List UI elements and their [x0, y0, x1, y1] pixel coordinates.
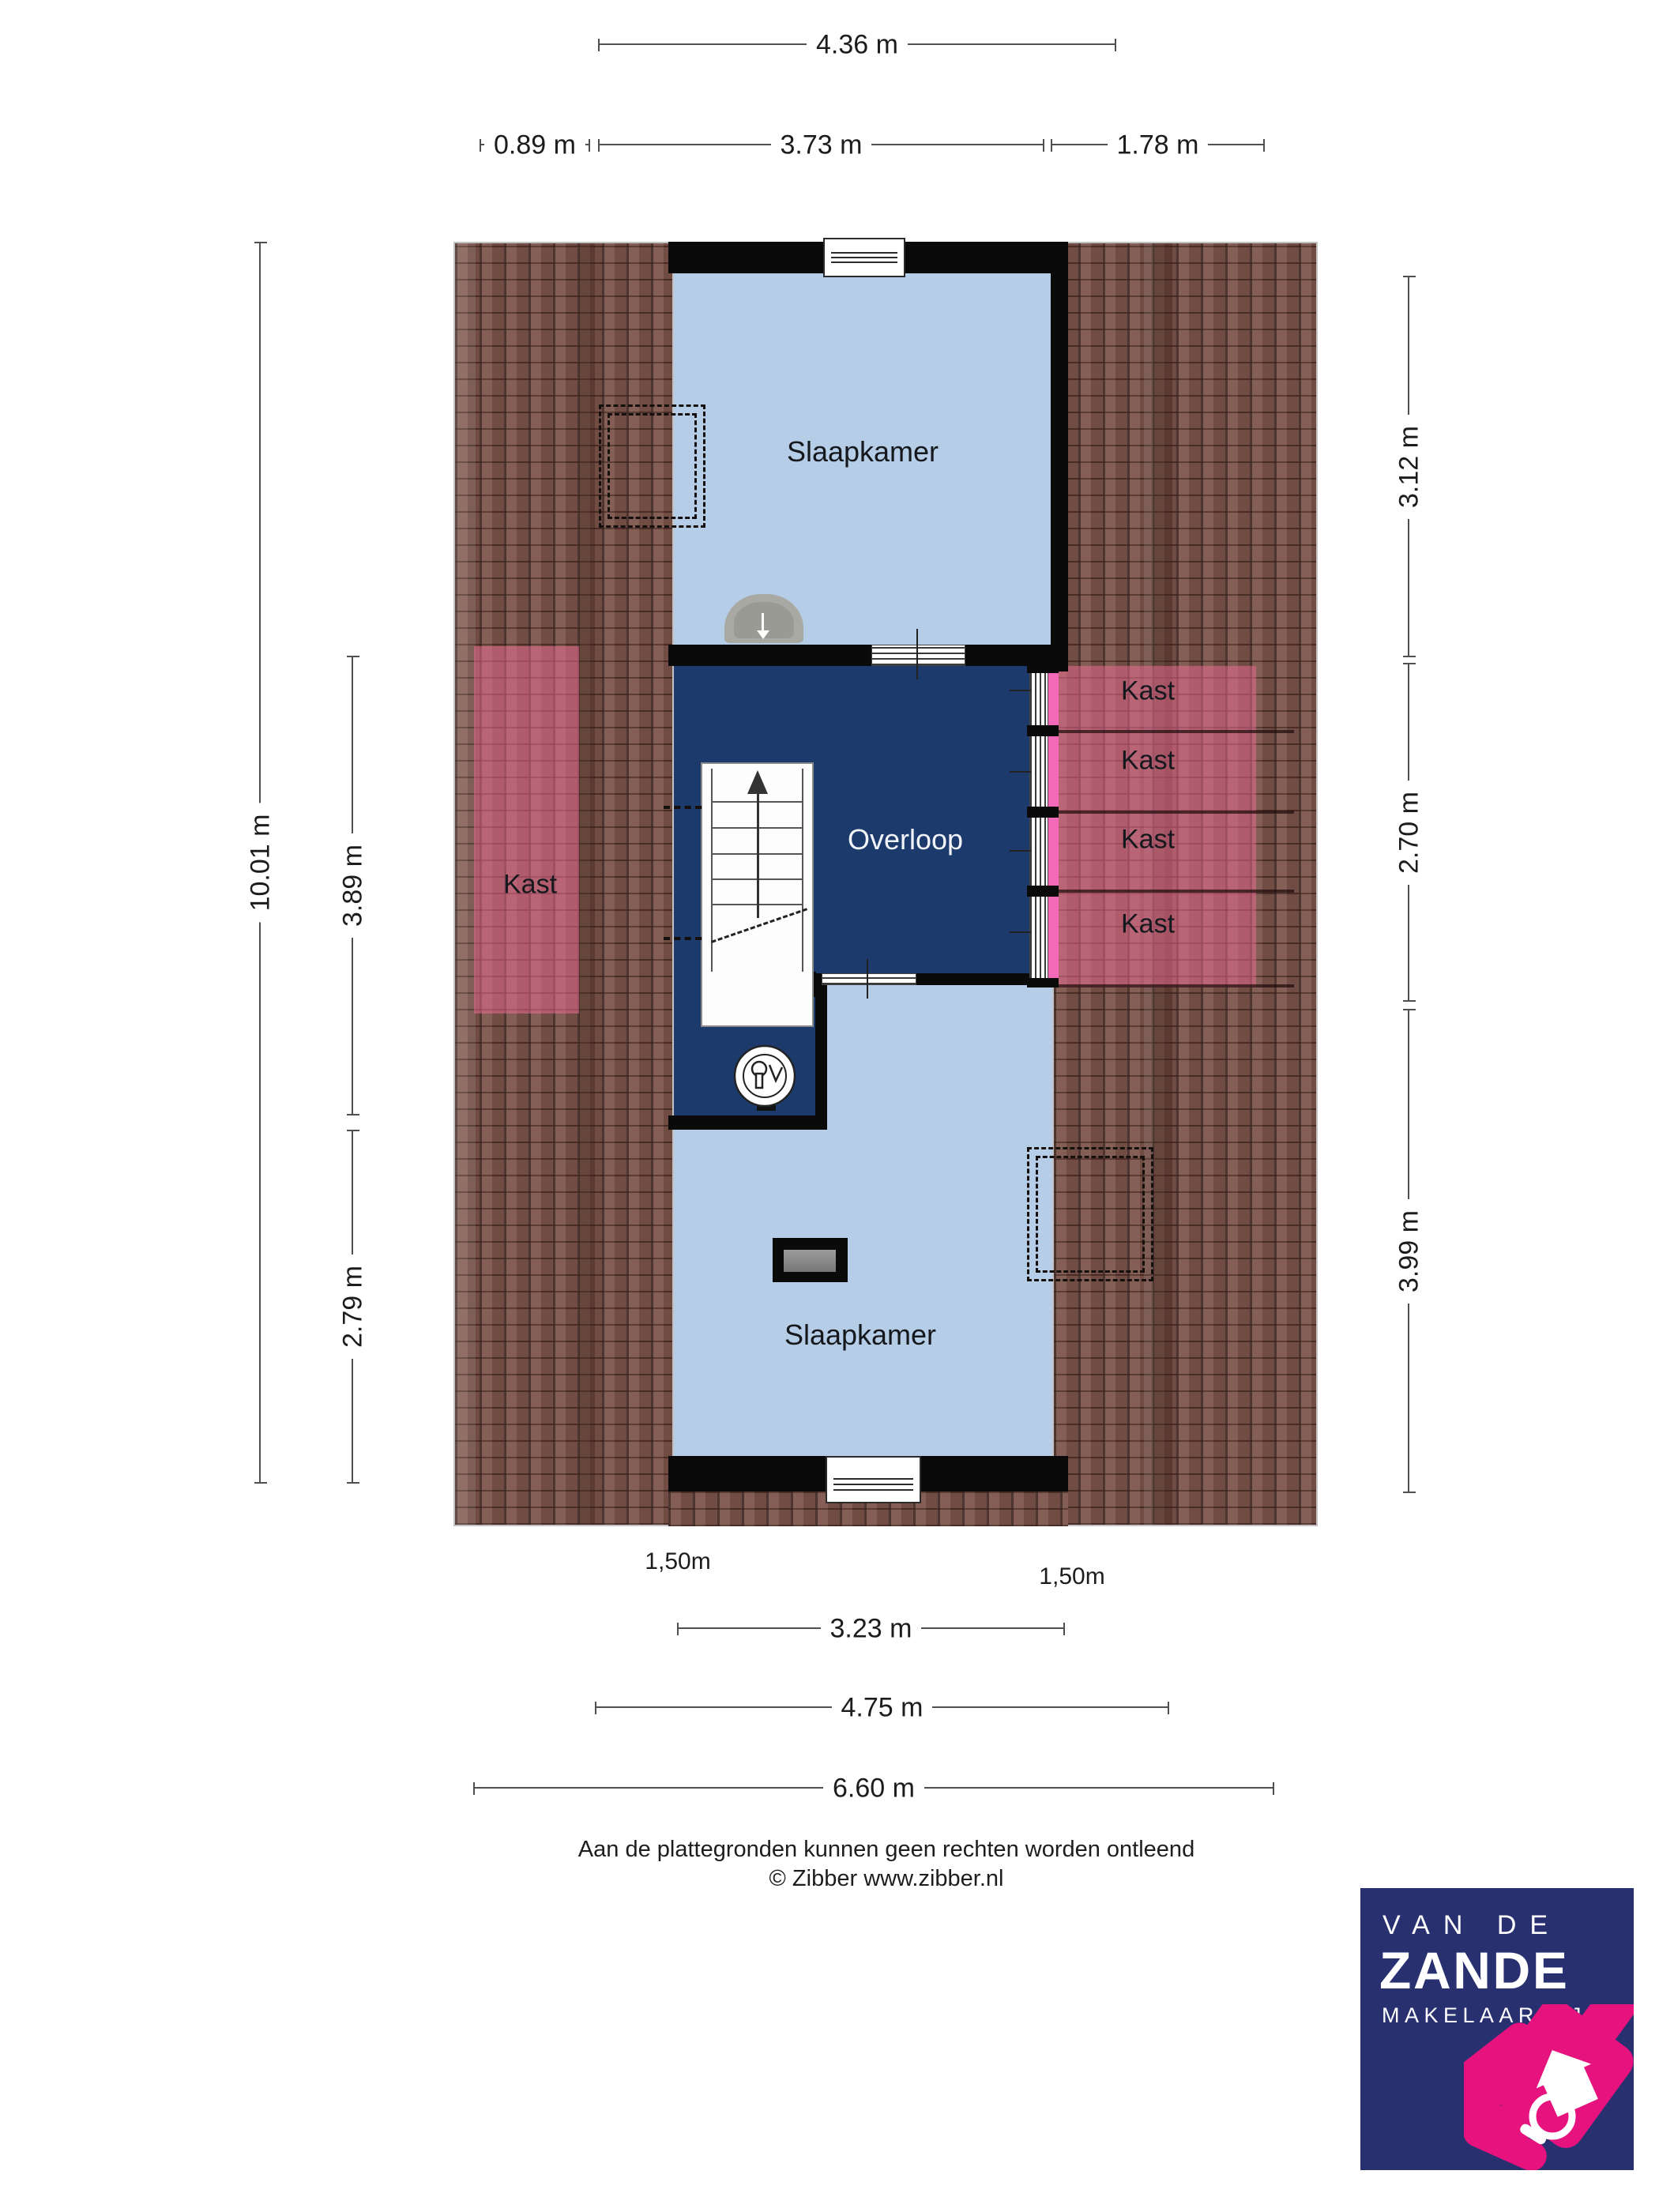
wall-divider-top: [668, 645, 871, 666]
headroom-label-left: 1,50m: [645, 1548, 710, 1575]
room-slaapkamer-bottom: [674, 1130, 1052, 1456]
sliding-door-icon: [871, 645, 965, 666]
closet-separator: [1052, 890, 1294, 893]
chimney-icon: [773, 1238, 848, 1282]
stairs-up-arrow-icon: [747, 770, 768, 794]
closet-doors: [1029, 671, 1048, 980]
dimension-top-total: 4.36 m: [598, 43, 1116, 45]
closet-jamb: [1027, 666, 1059, 673]
dimension-label: 0.89 m: [484, 129, 585, 163]
dimension-label: 1.78 m: [1108, 129, 1209, 163]
dimension-top-right: 1.78 m: [1051, 144, 1265, 145]
agency-logo: VAN DE ZANDE MAKELAARDIJ: [1360, 1888, 1634, 2170]
dimension-left-lower: 2.79 m: [352, 1130, 353, 1484]
logo-line-zande: ZANDE: [1379, 1940, 1570, 2000]
closet-pink-strip: [1048, 666, 1059, 987]
credit-text: © Zibber www.zibber.nl: [769, 1866, 1004, 1892]
room-label-kast-4: Kast: [1121, 909, 1175, 940]
roof-seam: [455, 243, 476, 1525]
window-glazing: [833, 1489, 913, 1491]
stair-cut-line: [711, 908, 807, 943]
ventilation-icon: [733, 1044, 796, 1112]
dimension-top-left: 0.89 m: [480, 144, 590, 145]
wall-top: [668, 242, 823, 273]
closet-jamb: [1027, 725, 1059, 736]
closet-jamb: [1027, 807, 1059, 818]
room-label-kast-2: Kast: [1121, 746, 1175, 777]
wall-divider-bottom: [816, 973, 822, 985]
dimension-bottom-1: 3.23 m: [677, 1627, 1065, 1629]
wall-stair-bay-right: [815, 985, 827, 1130]
wall-stair-bay-bottom: [668, 1115, 827, 1130]
dimension-label: 2.79 m: [337, 1255, 371, 1359]
roof-seam: [579, 243, 595, 1525]
dormer-outline-inner: [608, 413, 697, 519]
sink-drain-arrow: [757, 630, 769, 639]
room-label-kast-3: Kast: [1121, 825, 1175, 856]
door-tick: [916, 629, 918, 679]
closet-tick: [1010, 850, 1031, 852]
closet-jamb: [1027, 886, 1059, 897]
dimension-label: 2.70 m: [1393, 781, 1427, 885]
dimension-label: 3.89 m: [337, 833, 371, 938]
wall-right-top-bedroom: [1051, 242, 1068, 671]
door-tick: [867, 959, 868, 999]
room-label-kast-1: Kast: [1121, 676, 1175, 707]
closet-separator: [1052, 811, 1294, 814]
wall-divider-top: [965, 645, 1051, 666]
headroom-label-right: 1,50m: [1039, 1563, 1104, 1590]
dimension-label: 3.12 m: [1393, 415, 1427, 519]
window-glazing: [831, 252, 897, 254]
room-slaapkamer-bottom-upper: [816, 985, 1052, 1130]
wall-bottom: [921, 1456, 1068, 1492]
closet-tick: [1010, 771, 1031, 773]
wall-top: [905, 242, 1068, 273]
dormer-outline-inner: [1036, 1156, 1145, 1273]
magnifier-house-logo-icon: [1464, 2004, 1634, 2170]
dimension-left-total: 10.01 m: [259, 242, 261, 1484]
dormer-outline: [599, 404, 705, 528]
staircase: [701, 762, 814, 1027]
headroom-dash: [664, 937, 702, 940]
room-label-slaapkamer-top: Slaapkamer: [787, 435, 939, 468]
dimension-label: 3.73 m: [771, 129, 872, 163]
wall-divider-bottom: [916, 973, 1029, 985]
headroom-dash: [664, 806, 702, 809]
dimension-label: 3.99 m: [1393, 1199, 1427, 1303]
dimension-label: 4.75 m: [832, 1691, 933, 1725]
dimension-label: 6.60 m: [823, 1772, 924, 1806]
window-icon: [823, 238, 905, 277]
closet-tick: [1010, 690, 1031, 691]
dimension-label: 10.01 m: [244, 803, 278, 923]
room-label-kast-left: Kast: [503, 870, 557, 901]
wall-bottom: [668, 1456, 826, 1492]
window-glazing: [831, 257, 897, 258]
closet-tick: [1010, 931, 1031, 933]
closet-separator: [1052, 984, 1294, 987]
stair-rail: [802, 769, 803, 972]
dimension-bottom-3: 6.60 m: [473, 1787, 1274, 1789]
window-glazing: [831, 261, 897, 263]
dimension-top-middle: 3.73 m: [598, 144, 1044, 145]
dimension-label: 4.36 m: [807, 28, 908, 62]
chimney-flue: [784, 1250, 836, 1272]
stairs-up-arrow-icon: [757, 792, 759, 918]
dimension-right-middle: 2.70 m: [1408, 663, 1409, 1002]
dimension-right-top: 3.12 m: [1408, 276, 1409, 657]
dimension-right-bottom: 3.99 m: [1408, 1009, 1409, 1493]
floor-plan-page: Slaapkamer Overloop Slaapkamer Kast Kast…: [0, 0, 1659, 2212]
room-label-overloop: Overloop: [848, 823, 963, 856]
window-glazing: [833, 1478, 913, 1480]
closet-separator: [1052, 730, 1294, 733]
window-glazing: [833, 1484, 913, 1485]
dimension-bottom-2: 4.75 m: [595, 1706, 1169, 1708]
dimension-left-upper: 3.89 m: [352, 656, 353, 1115]
disclaimer-text: Aan de plattegronden kunnen geen rechten…: [578, 1837, 1194, 1863]
closet-jamb: [1027, 978, 1059, 987]
dormer-outline: [1027, 1147, 1153, 1281]
dimension-label: 3.23 m: [821, 1612, 922, 1646]
logo-line-van-de: VAN DE: [1382, 1910, 1561, 1941]
window-icon: [826, 1456, 921, 1503]
closet-zone-left: [474, 646, 579, 1014]
room-label-slaapkamer-bottom: Slaapkamer: [784, 1319, 936, 1352]
sliding-door-icon: [822, 973, 916, 985]
